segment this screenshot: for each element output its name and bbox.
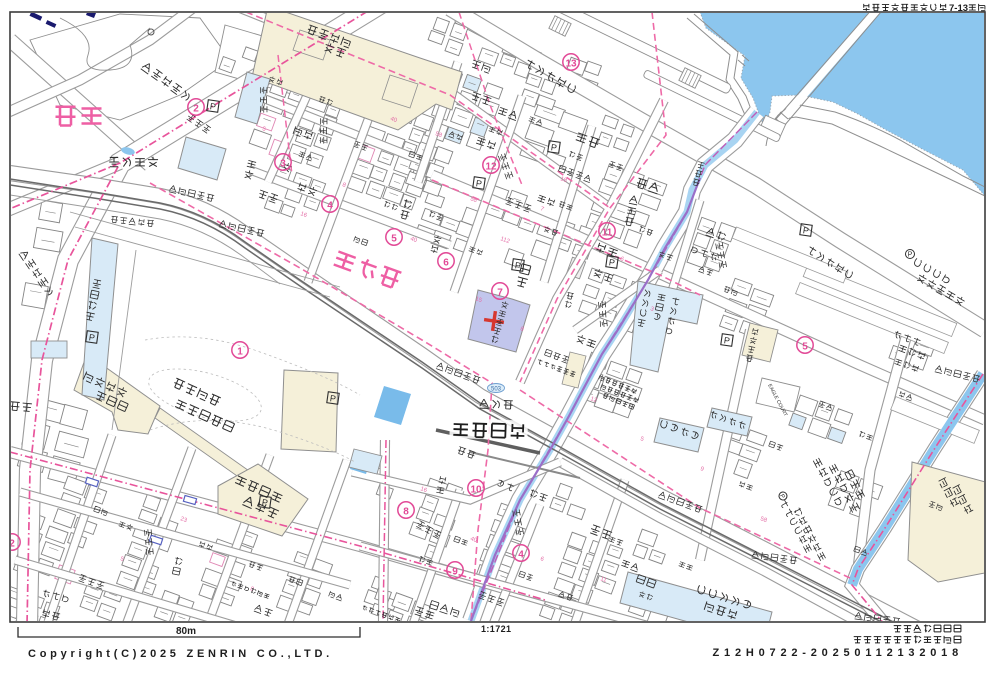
svg-text:5: 5	[391, 233, 397, 244]
svg-text:11: 11	[602, 227, 613, 238]
svg-text:Copyright(C)2025 ZENRIN CO.,LT: Copyright(C)2025 ZENRIN CO.,LTD.	[28, 648, 333, 660]
svg-text:6: 6	[443, 257, 449, 268]
svg-text:3: 3	[280, 158, 286, 169]
svg-text:10: 10	[470, 484, 482, 495]
svg-text:4: 4	[327, 200, 333, 211]
svg-text:503: 503	[491, 387, 502, 393]
svg-text:80m: 80m	[176, 626, 196, 637]
svg-text:8: 8	[403, 506, 409, 517]
svg-text:Z12H0722-20250112132018: Z12H0722-20250112132018	[713, 647, 963, 659]
svg-text:13: 13	[565, 58, 577, 69]
svg-text:9: 9	[452, 566, 458, 577]
svg-text:4: 4	[518, 549, 524, 560]
svg-text:1:1721: 1:1721	[481, 624, 511, 634]
svg-text:1: 1	[237, 346, 243, 357]
svg-text:7: 7	[497, 287, 503, 298]
svg-text:12: 12	[485, 161, 497, 172]
svg-text:2: 2	[193, 103, 199, 114]
svg-text:7-13: 7-13	[949, 3, 968, 14]
svg-text:5: 5	[802, 341, 808, 352]
svg-text:P: P	[908, 252, 913, 259]
